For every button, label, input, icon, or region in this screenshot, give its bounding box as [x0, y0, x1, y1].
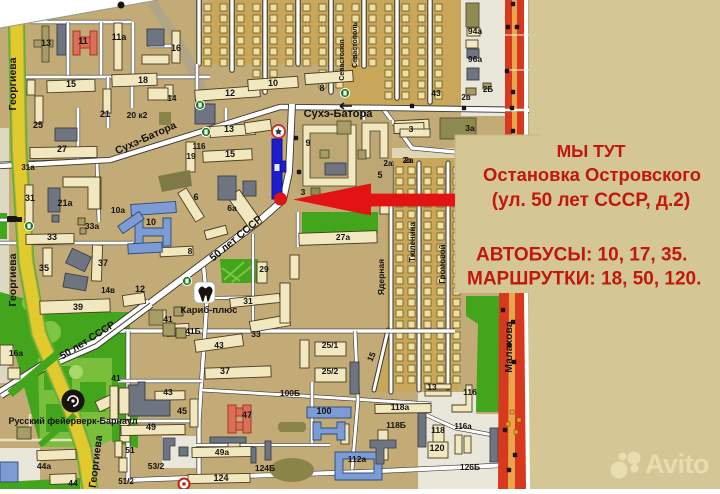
svg-text:Кариб-плюс: Кариб-плюс	[181, 305, 238, 316]
svg-text:3: 3	[301, 187, 306, 197]
svg-text:100: 100	[316, 406, 331, 416]
svg-text:94а: 94а	[468, 26, 482, 36]
svg-text:12: 12	[135, 284, 145, 294]
svg-text:11а: 11а	[112, 32, 128, 42]
svg-text:44а: 44а	[37, 461, 51, 471]
svg-text:33: 33	[47, 232, 57, 242]
svg-text:10: 10	[268, 78, 278, 88]
svg-text:14в: 14в	[101, 286, 115, 295]
svg-text:2в: 2в	[461, 93, 470, 102]
svg-text:Громовой: Громовой	[438, 244, 447, 283]
svg-text:2а: 2а	[384, 159, 393, 168]
svg-text:35: 35	[39, 263, 49, 273]
svg-text:49а: 49а	[215, 447, 229, 457]
svg-text:Малахова: Малахова	[503, 321, 515, 373]
svg-text:100Б: 100Б	[280, 388, 300, 398]
svg-text:2а: 2а	[403, 156, 412, 165]
svg-text:126Б: 126Б	[460, 462, 480, 472]
svg-text:37: 37	[220, 366, 230, 376]
svg-text:118а: 118а	[391, 402, 410, 412]
svg-text:13: 13	[427, 382, 437, 392]
svg-text:13: 13	[224, 124, 234, 134]
svg-text:8: 8	[188, 246, 193, 256]
svg-text:41: 41	[163, 314, 173, 324]
svg-text:18: 18	[138, 75, 148, 85]
svg-text:29: 29	[259, 264, 269, 274]
svg-text:(ул. 50 лет СССР, д.2): (ул. 50 лет СССР, д.2)	[492, 190, 690, 211]
svg-text:43: 43	[214, 340, 224, 350]
svg-text:25: 25	[33, 120, 43, 130]
svg-text:Ядерная: Ядерная	[376, 259, 386, 295]
svg-text:Севастополь: Севастополь	[352, 21, 359, 67]
svg-text:15: 15	[66, 79, 76, 89]
svg-text:6: 6	[193, 192, 198, 202]
svg-text:21: 21	[100, 109, 110, 119]
svg-text:44: 44	[68, 478, 78, 488]
svg-text:118Б: 118Б	[386, 420, 406, 430]
svg-text:Avito: Avito	[645, 449, 709, 479]
svg-text:41: 41	[111, 373, 121, 383]
svg-text:13: 13	[41, 38, 51, 48]
svg-text:37: 37	[98, 258, 108, 268]
svg-text:МАРШРУТКИ: 18, 50, 120.: МАРШРУТКИ: 18, 50, 120.	[467, 269, 701, 290]
svg-text:Севастопол: Севастопол	[339, 39, 346, 80]
svg-text:27: 27	[57, 144, 67, 154]
svg-text:53/2: 53/2	[148, 461, 165, 471]
svg-text:27а: 27а	[336, 232, 350, 242]
svg-text:43: 43	[163, 387, 173, 397]
svg-text:Тюленина: Тюленина	[408, 222, 417, 262]
svg-text:112а: 112а	[348, 454, 367, 464]
svg-text:120: 120	[429, 443, 444, 453]
svg-text:5: 5	[377, 170, 382, 180]
svg-text:8: 8	[319, 83, 324, 93]
svg-text:116: 116	[193, 142, 206, 151]
svg-text:16: 16	[171, 43, 181, 53]
svg-text:АВТОБУСЫ: 10, 17, 35.: АВТОБУСЫ: 10, 17, 35.	[476, 245, 687, 266]
svg-text:33а: 33а	[85, 221, 99, 231]
svg-text:43: 43	[431, 88, 441, 98]
svg-text:10: 10	[146, 217, 156, 227]
svg-text:33: 33	[251, 329, 261, 339]
svg-text:31а: 31а	[21, 163, 35, 172]
svg-text:19: 19	[186, 151, 196, 161]
svg-text:96а: 96а	[468, 54, 482, 64]
svg-text:9: 9	[305, 138, 310, 148]
svg-text:Георгиева: Георгиева	[7, 57, 19, 110]
svg-text:21а: 21а	[57, 198, 73, 208]
svg-text:12: 12	[225, 88, 235, 98]
svg-text:41Б: 41Б	[185, 326, 201, 336]
svg-text:6а: 6а	[227, 203, 237, 213]
svg-text:116а: 116а	[454, 422, 472, 431]
svg-text:Русский фейерверк-Барнаул: Русский фейерверк-Барнаул	[8, 416, 137, 426]
svg-text:47: 47	[242, 410, 252, 420]
svg-text:2Б: 2Б	[483, 85, 493, 94]
svg-text:11: 11	[78, 36, 88, 46]
svg-text:15: 15	[225, 149, 235, 159]
svg-text:Сухэ-Батора: Сухэ-Батора	[304, 108, 374, 120]
svg-text:51/2: 51/2	[118, 477, 134, 486]
svg-text:Георгиева: Георгиева	[7, 253, 19, 306]
svg-text:124Б: 124Б	[255, 463, 275, 473]
svg-text:Остановка Островского: Остановка Островского	[483, 164, 701, 185]
svg-text:10а: 10а	[111, 205, 125, 215]
svg-text:31: 31	[25, 193, 35, 203]
svg-text:3: 3	[409, 124, 414, 134]
svg-text:45: 45	[177, 406, 187, 416]
svg-text:3а: 3а	[465, 123, 475, 133]
svg-text:31: 31	[243, 296, 253, 306]
svg-text:25/1: 25/1	[322, 340, 339, 350]
svg-text:МЫ ТУТ: МЫ ТУТ	[557, 141, 626, 161]
svg-text:124: 124	[213, 473, 228, 483]
svg-text:51: 51	[125, 445, 135, 455]
svg-text:14: 14	[168, 94, 177, 103]
svg-text:118: 118	[431, 425, 445, 435]
svg-text:49: 49	[146, 422, 156, 432]
svg-text:39: 39	[73, 302, 83, 312]
svg-text:25/2: 25/2	[322, 366, 339, 376]
svg-text:116: 116	[463, 387, 477, 397]
svg-text:20 к2: 20 к2	[127, 110, 148, 120]
svg-text:16а: 16а	[9, 348, 23, 358]
